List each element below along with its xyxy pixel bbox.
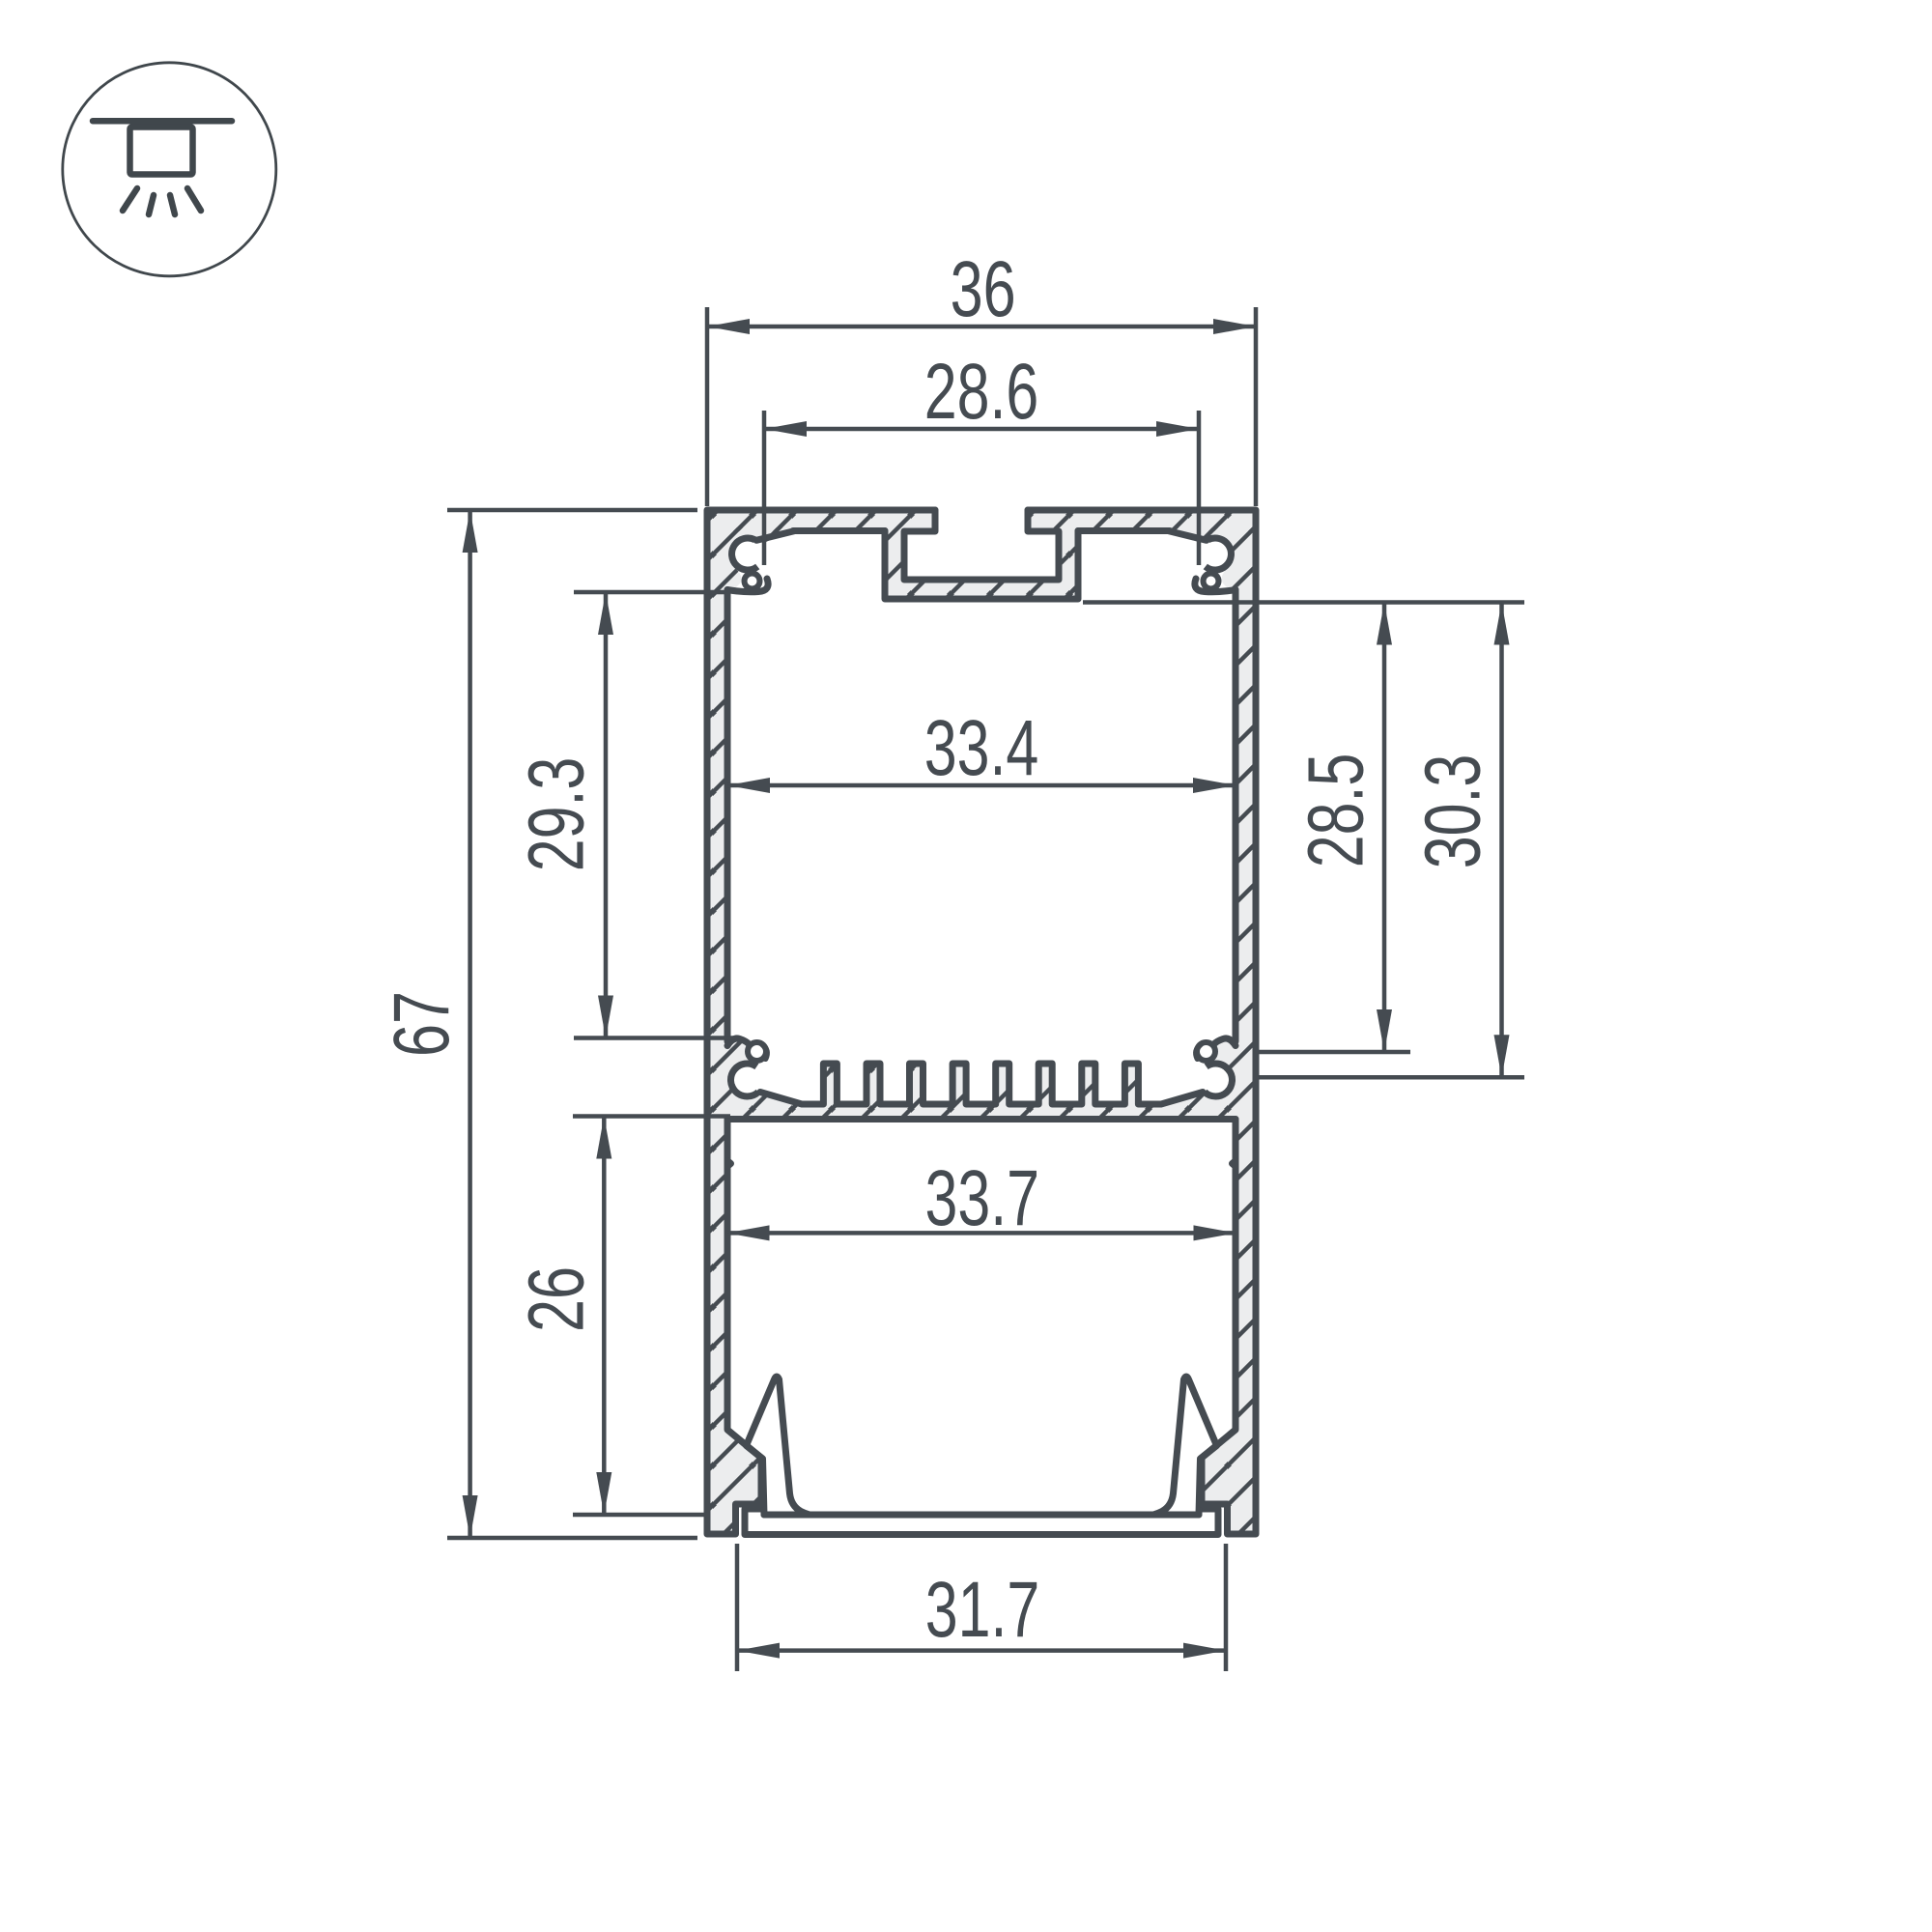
svg-text:28.5: 28.5 [1293,753,1380,868]
svg-text:26: 26 [513,1266,601,1332]
svg-text:33.7: 33.7 [925,1154,1040,1242]
svg-text:33.4: 33.4 [924,704,1039,792]
svg-text:36: 36 [951,245,1016,333]
svg-text:31.7: 31.7 [925,1566,1040,1654]
svg-text:28.6: 28.6 [924,348,1039,436]
svg-text:29.3: 29.3 [513,757,601,872]
svg-text:67: 67 [378,991,466,1057]
svg-text:30.3: 30.3 [1409,754,1497,869]
